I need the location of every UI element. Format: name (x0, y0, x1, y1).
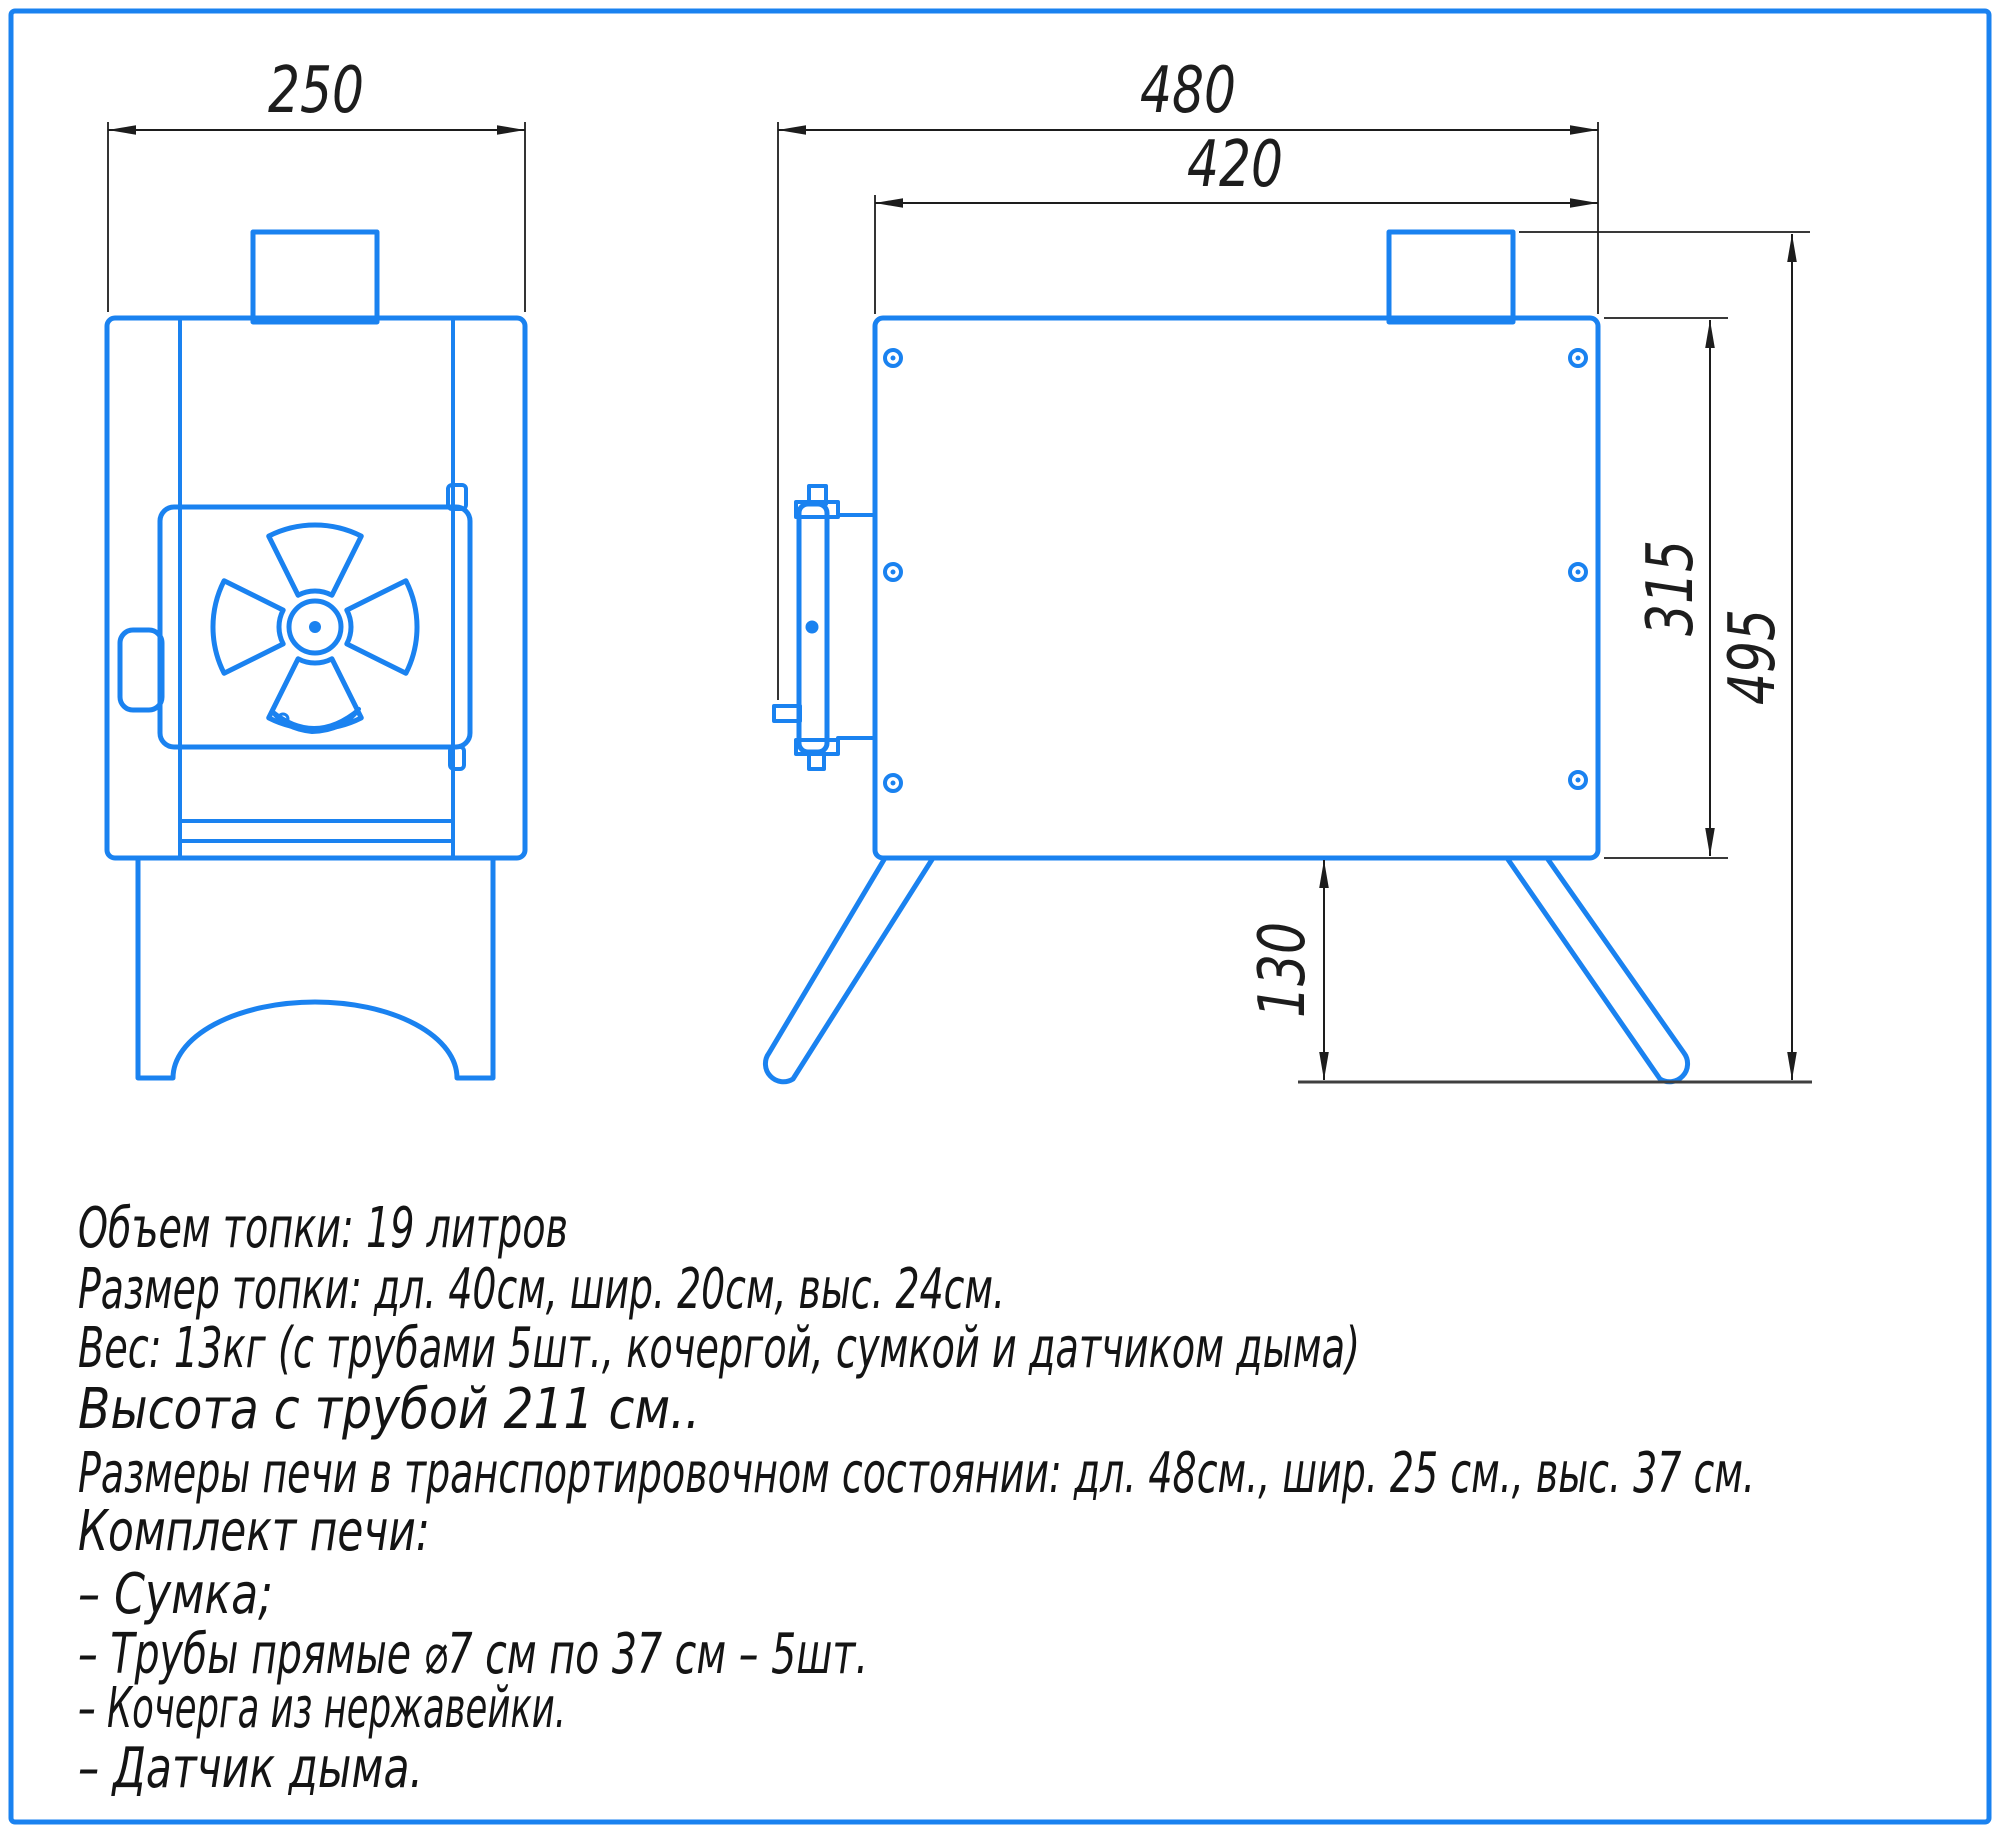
front-skirt-arch (138, 858, 493, 1078)
stove-drawing: 250 480 420 315 495 130 (0, 0, 2000, 1833)
spec-line: Размер топки: дл. 40см, шир. 20см, выс. … (78, 1257, 1005, 1322)
front-chimney-collar (253, 232, 377, 322)
dim-label-495: 495 (1716, 609, 1790, 705)
door-hinge-assembly (774, 486, 875, 769)
damper-lever (272, 709, 359, 732)
rivet (1570, 350, 1586, 366)
rivet (885, 564, 901, 580)
rivets (885, 350, 1586, 791)
hinge-pivot (806, 621, 819, 634)
vent-fan-blade-left (213, 581, 283, 674)
dim-leg-height: 130 (1246, 860, 1324, 1080)
rivet (1570, 772, 1586, 788)
spec-line: Высота с трубой 211 см.. (78, 1377, 700, 1442)
rivet (885, 350, 901, 366)
front-leg (765, 858, 933, 1082)
rivet (885, 775, 901, 791)
rear-leg (1507, 858, 1688, 1082)
spec-line: Вес: 13кг (с трубами 5шт., кочергой, сум… (78, 1316, 1360, 1381)
side-chimney-collar (1389, 232, 1513, 322)
spec-line: – Сумка; (78, 1562, 273, 1627)
dim-label-130: 130 (1246, 922, 1320, 1018)
spec-line: Размеры печи в транспортировочном состоя… (78, 1441, 1755, 1506)
front-view (107, 232, 525, 1078)
hinge-bracket-left (774, 706, 800, 721)
side-body (875, 318, 1598, 858)
dim-body-length: 420 (875, 128, 1598, 314)
dim-body-height: 315 (1604, 318, 1728, 858)
door-handle (120, 630, 162, 710)
vent-fan-blade-top (269, 525, 362, 595)
dim-overall-height: 495 (1519, 232, 1810, 1080)
rivet (1570, 564, 1586, 580)
spec-line: – Кочерга из нержавейки. (78, 1676, 566, 1741)
spec-line: – Датчик дыма. (78, 1736, 423, 1801)
spec-text-block: Объем топки: 19 литров Размер топки: дл.… (78, 1196, 1755, 1801)
vent-fan-blade-right (347, 581, 417, 674)
front-body (107, 318, 525, 858)
side-view (765, 232, 1687, 1082)
spec-line: Объем топки: 19 литров (78, 1196, 568, 1261)
vent-fan (213, 525, 417, 732)
technical-drawing-page: 250 480 420 315 495 130 (0, 0, 2000, 1833)
dim-label-480: 480 (1140, 54, 1236, 128)
dim-label-315: 315 (1634, 540, 1708, 636)
dim-label-420: 420 (1187, 128, 1283, 202)
vent-hub-dot (309, 621, 321, 633)
dim-label-250: 250 (268, 54, 364, 128)
dim-front-width: 250 (108, 54, 525, 312)
spec-line: Комплект печи: (78, 1499, 430, 1564)
